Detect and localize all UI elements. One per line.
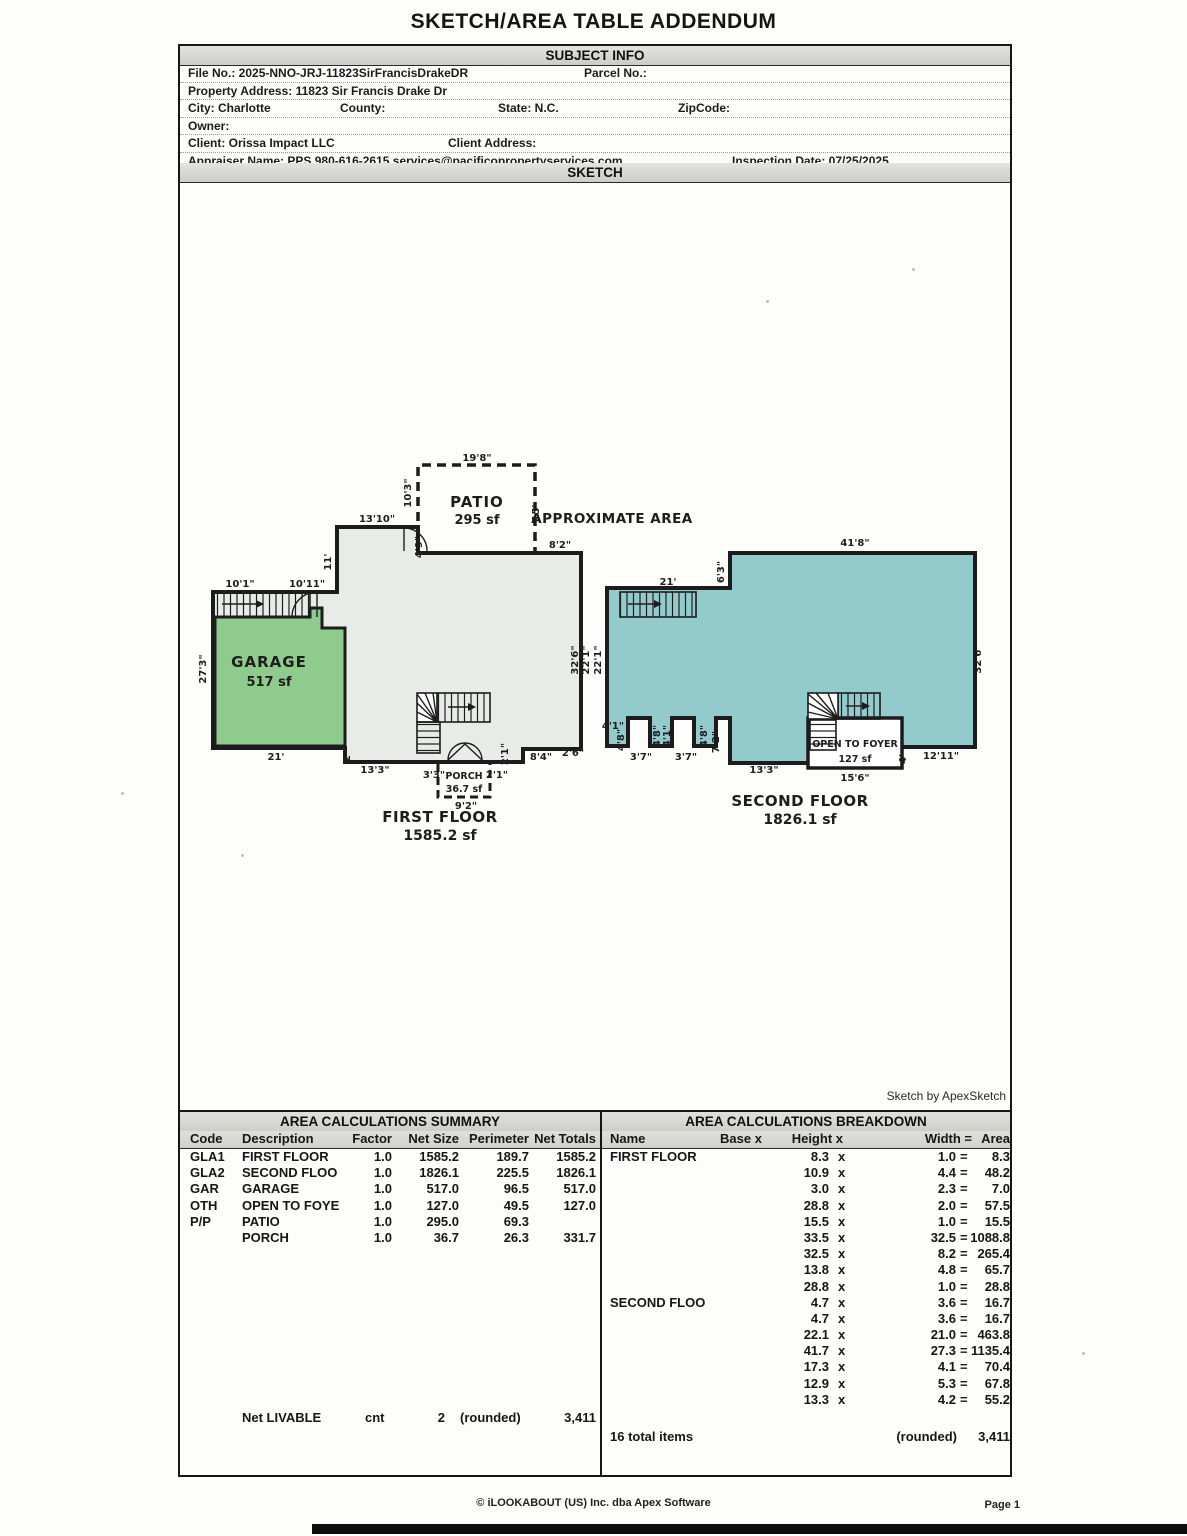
plan-label: 127 sf bbox=[839, 754, 873, 765]
cell: x bbox=[838, 1279, 852, 1294]
dimension-label: 2'1" bbox=[500, 743, 511, 765]
dimension-label: 2' bbox=[342, 752, 353, 762]
dimension-label: 4'9" bbox=[414, 536, 425, 558]
dimension-label: 2'1" bbox=[486, 770, 508, 781]
breakdown-row: SECOND FLOO4.7x3.6=16.7 bbox=[602, 1295, 1010, 1311]
dimension-label: 3'7" bbox=[630, 752, 652, 763]
cell: 265.4 bbox=[966, 1246, 1010, 1261]
footer-page-number: Page 1 bbox=[960, 1499, 1020, 1511]
dimension-label: 8'4" bbox=[530, 752, 552, 763]
dimension-label: 10'3" bbox=[403, 478, 414, 507]
summary-table-header: Code Description Factor Net Size Perimet… bbox=[180, 1131, 600, 1149]
cell: 69.3 bbox=[463, 1214, 529, 1229]
cell: 4.7 bbox=[752, 1295, 829, 1310]
cell: 10.9 bbox=[752, 1165, 829, 1180]
plan-label: APPROXIMATE AREA bbox=[531, 511, 693, 527]
cell: 22.1 bbox=[752, 1327, 829, 1342]
breakdown-row: 33.5x32.5=1088.8 bbox=[602, 1230, 1010, 1246]
cell: 48.2 bbox=[966, 1165, 1010, 1180]
cell: 1826.1 bbox=[395, 1165, 459, 1180]
cell: x bbox=[838, 1376, 852, 1391]
summary-row: OTHOPEN TO FOYE1.0127.049.5127.0 bbox=[180, 1198, 600, 1214]
dimension-label: 12'11" bbox=[923, 751, 959, 762]
summary-table-title: AREA CALCULATIONS SUMMARY bbox=[180, 1112, 600, 1131]
cell: FIRST FLOOR bbox=[610, 1149, 760, 1164]
cell: 1.0 bbox=[340, 1230, 392, 1245]
summary-row: GARGARAGE1.0517.096.5517.0 bbox=[180, 1181, 600, 1197]
cell: 1585.2 bbox=[532, 1149, 596, 1164]
cell: x bbox=[838, 1295, 852, 1310]
net-livable-label: Net LIVABLE bbox=[242, 1410, 321, 1425]
dimension-label: 4'8" bbox=[616, 729, 627, 751]
cell: 55.2 bbox=[966, 1392, 1010, 1407]
cell: 32.5 bbox=[882, 1230, 956, 1245]
cell: 4.8 bbox=[882, 1262, 956, 1277]
cell: GAR bbox=[190, 1181, 240, 1196]
column-header: Factor bbox=[340, 1131, 392, 1146]
cell: 463.8 bbox=[966, 1327, 1010, 1342]
cell: 225.5 bbox=[463, 1165, 529, 1180]
dimension-label: 19'8" bbox=[462, 453, 491, 464]
area-calculations-summary-table: AREA CALCULATIONS SUMMARY Code Descripti… bbox=[180, 1110, 600, 1475]
cell: 13.8 bbox=[752, 1262, 829, 1277]
cell: 3.0 bbox=[752, 1181, 829, 1196]
cell: x bbox=[838, 1343, 852, 1358]
cell: OTH bbox=[190, 1198, 240, 1213]
plan-label: PORCH bbox=[445, 771, 482, 782]
breakdown-row: 13.3x4.2=55.2 bbox=[602, 1392, 1010, 1408]
cell: 1.0 bbox=[882, 1279, 956, 1294]
plan-label: 1826.1 sf bbox=[763, 812, 837, 828]
cell: 2.0 bbox=[882, 1198, 956, 1213]
summary-row: GLA2SECOND FLOO1.01826.1225.51826.1 bbox=[180, 1165, 600, 1181]
cell: 1.0 bbox=[882, 1149, 956, 1164]
breakdown-total: 3,411 bbox=[966, 1429, 1010, 1444]
breakdown-row: 28.8x1.0=28.8 bbox=[602, 1279, 1010, 1295]
cell: 1.0 bbox=[340, 1181, 392, 1196]
cell: 1826.1 bbox=[532, 1165, 596, 1180]
cell: 17.3 bbox=[752, 1359, 829, 1374]
dimension-label: 41'8" bbox=[840, 538, 869, 549]
dimension-label: 10'11" bbox=[289, 579, 325, 590]
sketch-addendum-page: SKETCH/AREA TABLE ADDENDUM SUBJECT INFO … bbox=[0, 0, 1187, 1536]
cell: x bbox=[838, 1181, 852, 1196]
cnt-label: cnt bbox=[365, 1410, 385, 1425]
cell: x bbox=[838, 1214, 852, 1229]
column-header: Net Totals bbox=[532, 1131, 596, 1146]
cell: SECOND FLOO bbox=[610, 1295, 760, 1310]
cell: 16.7 bbox=[966, 1295, 1010, 1310]
cell: 517.0 bbox=[532, 1181, 596, 1196]
cell: 8.3 bbox=[752, 1149, 829, 1164]
cell: 1.0 bbox=[340, 1149, 392, 1164]
dimension-label: 10'1" bbox=[225, 579, 254, 590]
cell: 96.5 bbox=[463, 1181, 529, 1196]
net-livable-total: 3,411 bbox=[532, 1410, 596, 1425]
plan-label: 517 sf bbox=[246, 675, 291, 690]
dimension-label: 4'8" bbox=[699, 725, 710, 747]
breakdown-table-header: Name Base x Height x Width = Area bbox=[602, 1131, 1010, 1149]
cell: 2.3 bbox=[882, 1181, 956, 1196]
cell: x bbox=[838, 1230, 852, 1245]
summary-row: GLA1FIRST FLOOR1.01585.2189.71585.2 bbox=[180, 1149, 600, 1165]
cell: 15.5 bbox=[966, 1214, 1010, 1229]
cell: x bbox=[838, 1311, 852, 1326]
dimension-label: 15'6" bbox=[840, 773, 869, 784]
dimension-label: 32'6" bbox=[570, 645, 581, 674]
column-header: Code bbox=[190, 1131, 240, 1146]
scan-speck bbox=[912, 268, 915, 271]
breakdown-row: 13.8x4.8=65.7 bbox=[602, 1262, 1010, 1278]
scan-speck bbox=[1082, 1352, 1085, 1355]
cell: 28.8 bbox=[752, 1198, 829, 1213]
summary-table-footer: Net LIVABLE cnt 2 (rounded) 3,411 bbox=[180, 1410, 600, 1427]
breakdown-row: 12.9x5.3=67.8 bbox=[602, 1376, 1010, 1392]
dimension-label: 13'10" bbox=[359, 514, 395, 525]
plan-label: PATIO bbox=[450, 493, 504, 511]
area-calculations-breakdown-table: AREA CALCULATIONS BREAKDOWN Name Base x … bbox=[600, 1110, 1010, 1477]
dimension-label: 2'6" bbox=[562, 748, 584, 759]
plan-label: OPEN TO FOYER bbox=[812, 739, 898, 750]
cell: x bbox=[838, 1262, 852, 1277]
cell: 4.2 bbox=[882, 1392, 956, 1407]
breakdown-table-title: AREA CALCULATIONS BREAKDOWN bbox=[602, 1112, 1010, 1131]
breakdown-row: 28.8x2.0=57.5 bbox=[602, 1198, 1010, 1214]
cell: 32.5 bbox=[752, 1246, 829, 1261]
cell: 1585.2 bbox=[395, 1149, 459, 1164]
breakdown-row: FIRST FLOOR8.3x1.0=8.3 bbox=[602, 1149, 1010, 1165]
cell: 1135.4 bbox=[966, 1343, 1010, 1358]
cell: x bbox=[838, 1246, 852, 1261]
dimension-label: 7'2" bbox=[711, 731, 722, 753]
sketch-credit: Sketch by ApexSketch bbox=[180, 1089, 1006, 1103]
column-header: Perimeter bbox=[463, 1131, 529, 1146]
cell: 13.3 bbox=[752, 1392, 829, 1407]
cell: 16.7 bbox=[966, 1311, 1010, 1326]
cell: 41.7 bbox=[752, 1343, 829, 1358]
cell: 1.0 bbox=[340, 1214, 392, 1229]
floor-count: 2 bbox=[395, 1410, 445, 1425]
cell: 5.3 bbox=[882, 1376, 956, 1391]
dimension-label: 4'1" bbox=[662, 725, 673, 747]
dimension-label: 21' bbox=[268, 752, 285, 763]
cell: 331.7 bbox=[532, 1230, 596, 1245]
dimension-label: 4' bbox=[898, 754, 909, 764]
dimension-label: 13'3" bbox=[360, 765, 389, 776]
cell: 4.1 bbox=[882, 1359, 956, 1374]
second-floor-entry-stairs bbox=[620, 592, 696, 617]
cell: 1088.8 bbox=[966, 1230, 1010, 1245]
dimension-label: 8'2" bbox=[549, 540, 571, 551]
dimension-label: 13'3" bbox=[749, 765, 778, 776]
breakdown-row: 15.5x1.0=15.5 bbox=[602, 1214, 1010, 1230]
cell: 4.4 bbox=[882, 1165, 956, 1180]
cell: x bbox=[838, 1149, 852, 1164]
cell: 517.0 bbox=[395, 1181, 459, 1196]
column-header: Height x bbox=[752, 1131, 843, 1146]
cell: 28.8 bbox=[966, 1279, 1010, 1294]
cell: x bbox=[838, 1327, 852, 1342]
summary-table-body: GLA1FIRST FLOOR1.01585.2189.71585.2GLA2S… bbox=[180, 1149, 600, 1246]
plan-label: 295 sf bbox=[454, 513, 499, 528]
cell: 70.4 bbox=[966, 1359, 1010, 1374]
cell: 26.3 bbox=[463, 1230, 529, 1245]
dimension-label: 3'3" bbox=[423, 770, 445, 781]
cell: 127.0 bbox=[395, 1198, 459, 1213]
breakdown-row: 3.0x2.3=7.0 bbox=[602, 1181, 1010, 1197]
cell: 28.8 bbox=[752, 1279, 829, 1294]
cell: 189.7 bbox=[463, 1149, 529, 1164]
summary-row: PORCH1.036.726.3331.7 bbox=[180, 1230, 600, 1246]
cell: P/P bbox=[190, 1214, 240, 1229]
dimension-label: 3'7" bbox=[675, 752, 697, 763]
cell: 7.0 bbox=[966, 1181, 1010, 1196]
cell: x bbox=[838, 1165, 852, 1180]
dimension-label: 21' bbox=[660, 577, 677, 588]
cell: x bbox=[838, 1198, 852, 1213]
cell: 33.5 bbox=[752, 1230, 829, 1245]
cell: 15.5 bbox=[752, 1214, 829, 1229]
plan-label: FIRST FLOOR bbox=[382, 808, 497, 826]
cell: 4.7 bbox=[752, 1311, 829, 1326]
summary-row: P/PPATIO1.0295.069.3 bbox=[180, 1214, 600, 1230]
cell: 67.8 bbox=[966, 1376, 1010, 1391]
breakdown-row: 17.3x4.1=70.4 bbox=[602, 1359, 1010, 1375]
dimension-label: 27'3" bbox=[198, 654, 209, 683]
dimension-label: 22'1" bbox=[593, 645, 604, 674]
breakdown-row: 22.1x21.0=463.8 bbox=[602, 1327, 1010, 1343]
cell: 295.0 bbox=[395, 1214, 459, 1229]
dimension-label: 32'6" bbox=[973, 644, 984, 673]
cell: 8.3 bbox=[966, 1149, 1010, 1164]
column-header: Area bbox=[966, 1131, 1010, 1146]
plan-label: 36.7 sf bbox=[446, 784, 483, 795]
total-items-label: 16 total items bbox=[610, 1429, 693, 1444]
cell: x bbox=[838, 1392, 852, 1407]
rounded-label: (rounded) bbox=[857, 1429, 957, 1444]
plan-label: GARAGE bbox=[231, 653, 307, 671]
rounded-label: (rounded) bbox=[460, 1410, 521, 1425]
breakdown-table-body: FIRST FLOOR8.3x1.0=8.310.9x4.4=48.23.0x2… bbox=[602, 1149, 1010, 1408]
dimension-label: 22'1" bbox=[581, 645, 592, 674]
cell: 57.5 bbox=[966, 1198, 1010, 1213]
cell: 8.2 bbox=[882, 1246, 956, 1261]
cell: 3.6 bbox=[882, 1311, 956, 1326]
cell: 12.9 bbox=[752, 1376, 829, 1391]
breakdown-table-footer: 16 total items (rounded) 3,411 bbox=[602, 1429, 1010, 1446]
cell: 127.0 bbox=[532, 1198, 596, 1213]
cell: GLA2 bbox=[190, 1165, 240, 1180]
scan-speck bbox=[121, 792, 124, 795]
plan-label: SECOND FLOOR bbox=[731, 792, 868, 810]
cell: GLA1 bbox=[190, 1149, 240, 1164]
scan-speck bbox=[241, 854, 244, 857]
cell: 21.0 bbox=[882, 1327, 956, 1342]
cell: x bbox=[838, 1359, 852, 1374]
breakdown-row: 32.5x8.2=265.4 bbox=[602, 1246, 1010, 1262]
breakdown-row: 4.7x3.6=16.7 bbox=[602, 1311, 1010, 1327]
column-header: Width = bbox=[882, 1131, 972, 1146]
cell: 27.3 bbox=[882, 1343, 956, 1358]
cell: 1.0 bbox=[882, 1214, 956, 1229]
cell: 3.6 bbox=[882, 1295, 956, 1310]
scan-speck bbox=[766, 300, 769, 303]
dimension-label: 11' bbox=[323, 554, 334, 571]
cell: 49.5 bbox=[463, 1198, 529, 1213]
plan-label: 1585.2 sf bbox=[403, 828, 477, 844]
column-header: Net Size bbox=[395, 1131, 459, 1146]
cell: 65.7 bbox=[966, 1262, 1010, 1277]
cell: 1.0 bbox=[340, 1165, 392, 1180]
cell: 36.7 bbox=[395, 1230, 459, 1245]
dimension-label: 6'3" bbox=[716, 561, 727, 583]
scan-artifact-bar bbox=[312, 1524, 1187, 1534]
breakdown-row: 10.9x4.4=48.2 bbox=[602, 1165, 1010, 1181]
breakdown-row: 41.7x27.3=1135.4 bbox=[602, 1343, 1010, 1359]
cell: 1.0 bbox=[340, 1198, 392, 1213]
